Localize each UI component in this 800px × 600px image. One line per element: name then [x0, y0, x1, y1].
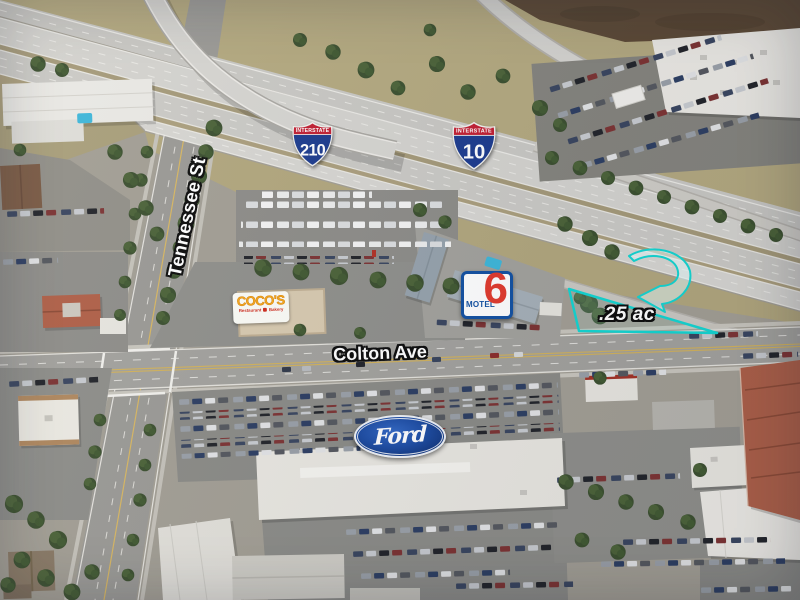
- shield-route-number: 10: [463, 142, 486, 164]
- terracotta-building: [740, 360, 800, 523]
- aerial-map: [0, 0, 800, 600]
- shield-banner-text: INTERSTATE: [296, 128, 330, 134]
- parcel-area-label: .25 ac: [599, 304, 655, 326]
- cocos-logo: COCO'S Restaurant Bakery: [232, 291, 289, 324]
- fast-food-building: [18, 394, 81, 448]
- ford-logo: Ford: [354, 415, 446, 458]
- cocos-square-icon: [263, 308, 267, 312]
- terracotta-roof-restaurant: [42, 294, 103, 331]
- street-label-colton: Colton Ave: [330, 341, 431, 365]
- shield-route-number: 210: [300, 141, 326, 159]
- cocos-tagline: Restaurant Bakery: [234, 307, 288, 314]
- aerial-listing-photo: Tennessee St Colton Ave INTERSTATE 210 I…: [0, 0, 800, 600]
- interstate-10-shield-icon: INTERSTATE 10: [452, 120, 496, 171]
- brown-building: [0, 164, 42, 210]
- shield-banner-text: INTERSTATE: [456, 129, 492, 135]
- motel6-logo: MOTEL 6: [461, 271, 513, 319]
- interstate-210-shield-icon: INTERSTATE 210: [292, 121, 333, 167]
- ford-wordmark: Ford: [374, 421, 427, 453]
- motel6-numeral: 6: [484, 267, 508, 311]
- cocos-wordmark: COCO'S: [233, 293, 289, 308]
